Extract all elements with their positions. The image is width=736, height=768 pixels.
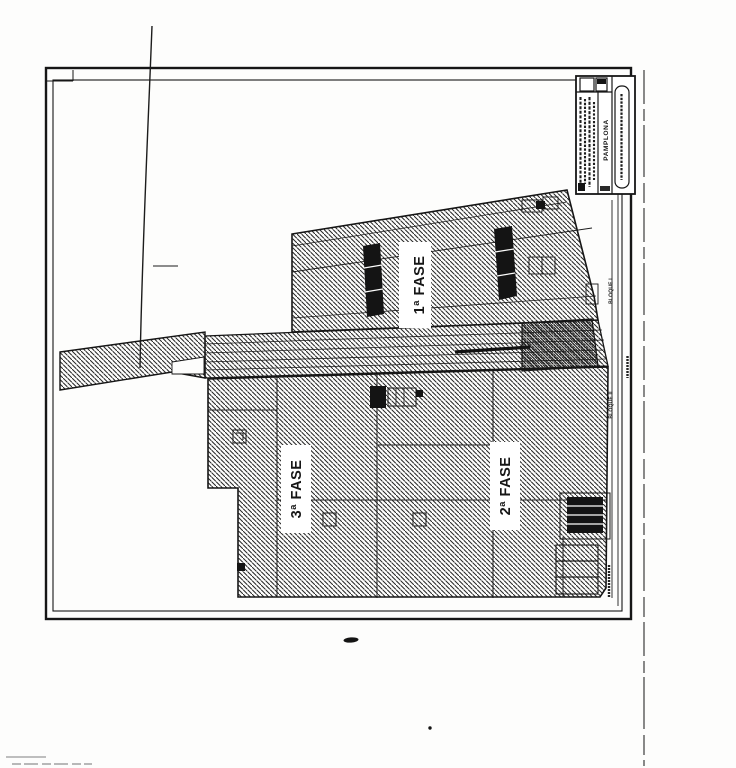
smudge <box>600 186 610 191</box>
title-block-city: PAMPLONA <box>603 119 610 161</box>
bloque-1-label: BLOQUE I <box>608 278 614 304</box>
smudge <box>578 183 585 191</box>
roof-dark-detail <box>536 201 545 209</box>
bloque-2-label: BLOQUE II <box>608 391 614 419</box>
building-phase-2-3: 3ª FASE 2ª FASE <box>208 367 610 598</box>
boundary-curve <box>140 26 178 368</box>
scan-marks <box>6 637 432 764</box>
title-block: PAMPLONA <box>576 76 635 194</box>
phase-2-label: 2ª FASE <box>498 457 514 516</box>
stair-core-icon <box>560 493 610 539</box>
phase-3-label: 3ª FASE <box>289 460 305 519</box>
corner-mark <box>237 563 245 571</box>
access-wedge <box>60 332 205 390</box>
site-plan: 1ª FASE <box>0 0 736 768</box>
building-phase-1: 1ª FASE <box>292 190 598 332</box>
scanned-plan-page: 1ª FASE <box>0 0 736 768</box>
phase-1-label: 1ª FASE <box>412 256 428 315</box>
road-dense-block <box>522 319 598 371</box>
